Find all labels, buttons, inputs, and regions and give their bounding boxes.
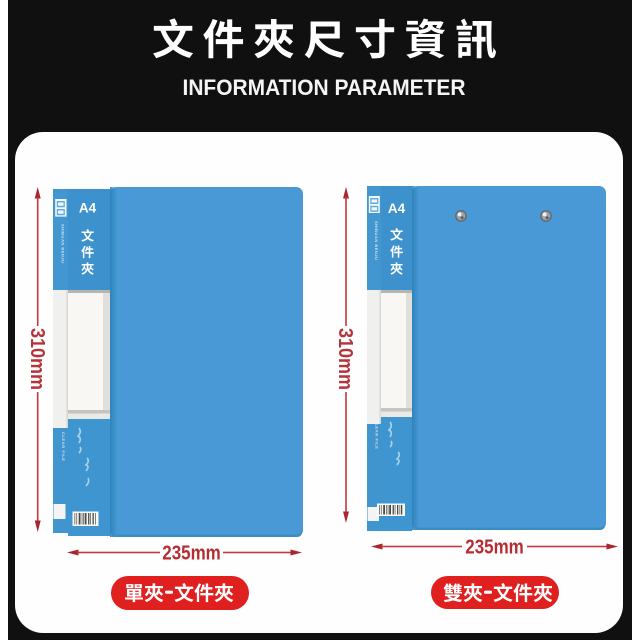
svg-text:310mm: 310mm <box>26 328 48 390</box>
svg-text:CLEAR FILE: CLEAR FILE <box>61 432 66 462</box>
svg-text:INFORMATION PARAMETER: INFORMATION PARAMETER <box>183 75 466 100</box>
svg-text:235mm: 235mm <box>465 537 524 559</box>
svg-text:235mm: 235mm <box>162 543 221 565</box>
svg-text:CLEAR FILE: CLEAR FILE <box>375 420 380 450</box>
svg-text:310mm: 310mm <box>334 328 356 390</box>
svg-text:SHIBUAN BENJU: SHIBUAN BENJU <box>374 221 379 260</box>
svg-text:A4: A4 <box>79 201 97 216</box>
svg-text:SHIBUAN BENJU: SHIBUAN BENJU <box>61 224 66 263</box>
svg-text:A4: A4 <box>388 201 406 216</box>
